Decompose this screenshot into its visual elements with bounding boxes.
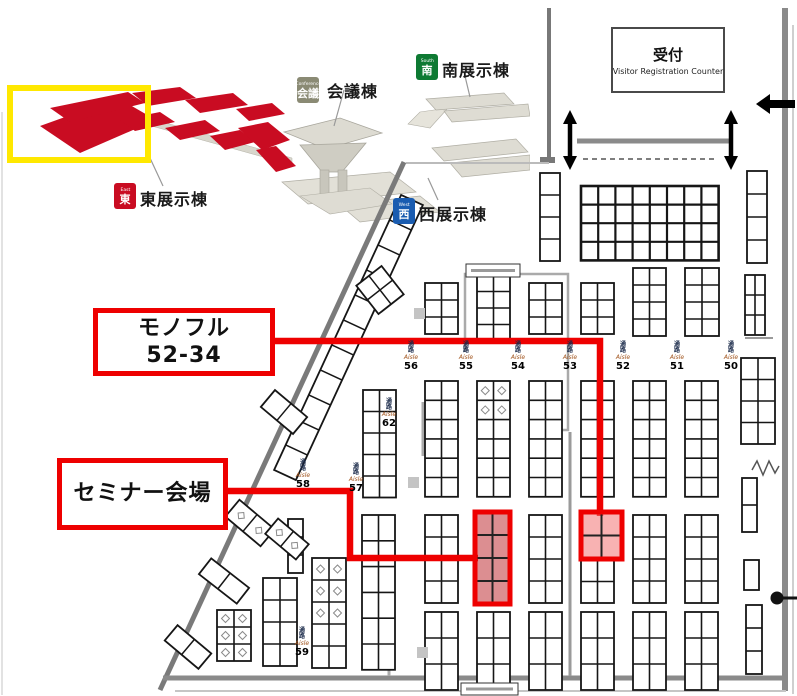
east-badge-jp: 東 bbox=[120, 194, 131, 205]
slanted-booth-block bbox=[199, 558, 249, 603]
west-badge: West 西 bbox=[393, 198, 415, 224]
registration-subtitle: Visitor Registration Counter bbox=[613, 67, 724, 76]
booth-block bbox=[746, 605, 762, 674]
entrance-arrow-head-up bbox=[563, 110, 577, 124]
south-label: 南展示棟 bbox=[442, 57, 510, 81]
callout-seminar-label: セミナー会場 bbox=[73, 480, 211, 508]
booth-block bbox=[744, 560, 759, 590]
pillar bbox=[414, 308, 425, 319]
conference-label: 会議棟 bbox=[327, 78, 378, 102]
west-badge-jp: 西 bbox=[399, 209, 410, 220]
direction-arrow-head bbox=[756, 94, 770, 114]
callout-booth-name: モノフル bbox=[138, 315, 230, 343]
entrance-arrow-head-down bbox=[563, 156, 577, 170]
aisle-label-54: 通路Aisle54 bbox=[511, 342, 525, 372]
conference-badge: Conference 会議 bbox=[297, 77, 319, 103]
slanted-booth-strip bbox=[274, 195, 423, 480]
aisle-label-62: 通路Aisle62 bbox=[382, 399, 396, 429]
registration-counter-box: 受付 Visitor Registration Counter bbox=[611, 27, 725, 93]
aisle-label-55: 通路Aisle55 bbox=[459, 342, 473, 372]
callout-booth-52-34: モノフル 52-34 bbox=[93, 308, 275, 376]
entrance-arrow-head-down bbox=[724, 156, 738, 170]
entrance-arrow-head-up bbox=[724, 110, 738, 124]
door-dot bbox=[771, 592, 784, 605]
south-badge: South 南 bbox=[416, 54, 438, 80]
aisle-label-52: 通路Aisle52 bbox=[616, 342, 630, 372]
pillar bbox=[417, 647, 428, 658]
east-badge-en: East bbox=[120, 188, 130, 193]
registration-title: 受付 bbox=[653, 44, 683, 65]
conference-badge-jp: 会議 bbox=[297, 88, 319, 99]
slanted-booth-block bbox=[225, 500, 274, 546]
south-badge-jp: 南 bbox=[422, 65, 433, 76]
aisle-label-59: 通路Aisle59 bbox=[295, 628, 309, 658]
exhibition-floor-map: Conference 会議 会議棟 South 南 南展示棟 East 東 東展… bbox=[0, 0, 797, 696]
zigzag-symbol bbox=[752, 461, 779, 475]
east-badge: East 東 bbox=[114, 183, 136, 209]
aisle-label-56: 通路Aisle56 bbox=[404, 342, 418, 372]
west-label: 西展示棟 bbox=[419, 201, 487, 225]
aisle-label-51: 通路Aisle51 bbox=[670, 342, 684, 372]
east-label: 東展示棟 bbox=[140, 186, 208, 210]
aisle-label-50: 通路Aisle50 bbox=[724, 342, 738, 372]
callout-booth-number: 52-34 bbox=[146, 342, 221, 370]
pillar bbox=[408, 477, 419, 488]
south-badge-en: South bbox=[420, 59, 433, 64]
conference-badge-en: Conference bbox=[295, 82, 321, 87]
aisle-label-57: 通路Aisle57 bbox=[349, 464, 363, 494]
aisle-label-58: 通路Aisle58 bbox=[296, 460, 310, 490]
west-badge-en: West bbox=[398, 203, 409, 208]
aisle-label-53: 通路Aisle53 bbox=[563, 342, 577, 372]
callout-seminar-venue: セミナー会場 bbox=[57, 458, 228, 530]
